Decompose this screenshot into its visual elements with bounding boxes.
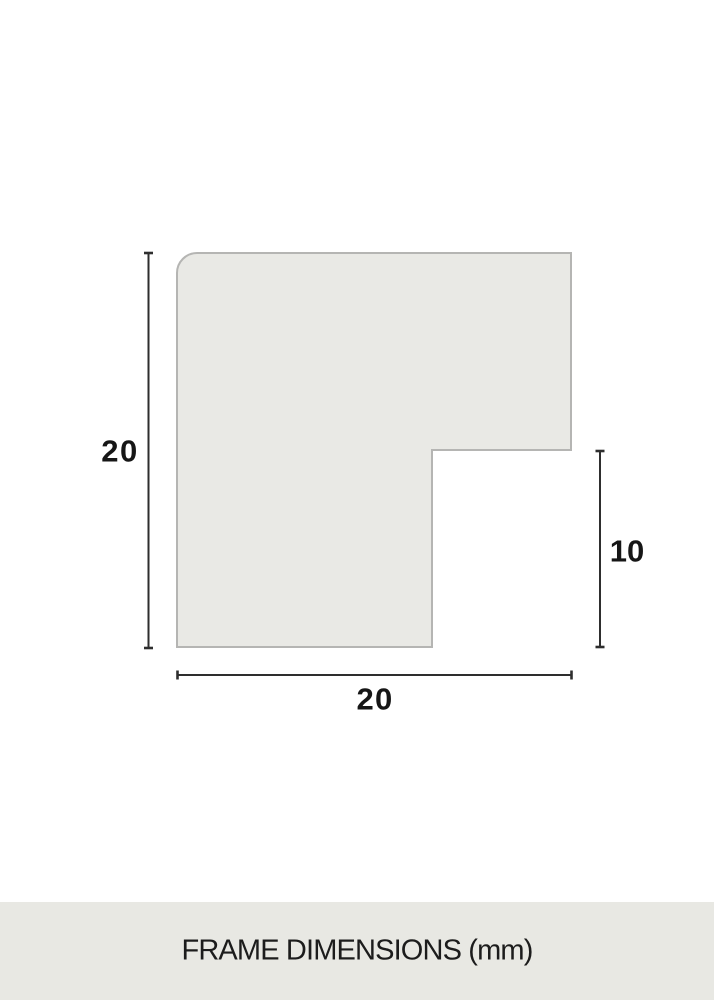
svg-text:FRAME DIMENSIONS (mm): FRAME DIMENSIONS (mm) [181, 935, 532, 967]
svg-text:20: 20 [101, 434, 138, 469]
svg-text:20: 20 [357, 682, 394, 717]
svg-text:10: 10 [610, 534, 644, 569]
